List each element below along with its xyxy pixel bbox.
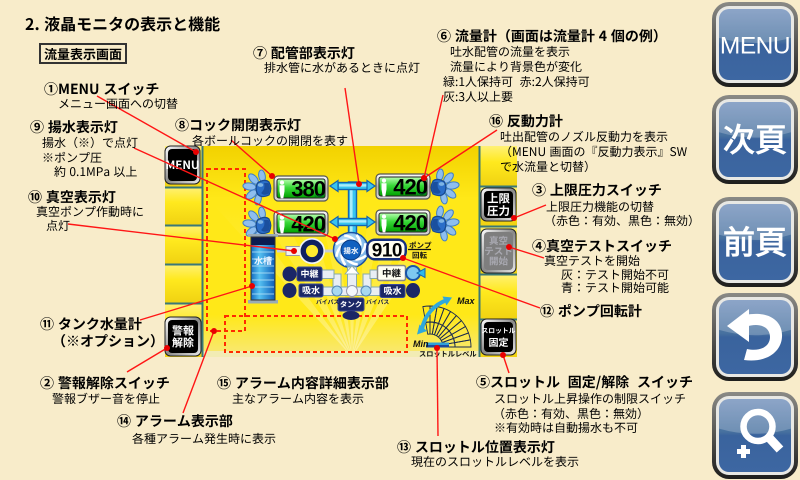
svg-text:回転: 回転 <box>412 250 427 261</box>
svg-text:吸水: 吸水 <box>302 284 320 297</box>
svg-text:次頁: 次頁 <box>723 115 787 161</box>
svg-text:中継: 中継 <box>382 266 402 280</box>
svg-text:前頁: 前頁 <box>723 218 787 264</box>
svg-text:固定: 固定 <box>489 334 509 349</box>
svg-text:L/min: L/min <box>417 192 426 196</box>
svg-text:水槽: 水槽 <box>254 254 272 267</box>
svg-text:MENU: MENU <box>720 33 790 60</box>
svg-text:910: 910 <box>372 241 402 262</box>
svg-text:開始: 開始 <box>489 254 509 268</box>
svg-text:吸水: 吸水 <box>383 284 401 297</box>
svg-text:L/min: L/min <box>417 228 426 232</box>
svg-text:スロットルレベル: スロットルレベル <box>419 350 477 360</box>
svg-text:バイパス: バイパス <box>316 297 339 306</box>
svg-text:Min: Min <box>413 339 429 349</box>
svg-text:L/min: L/min <box>315 194 324 198</box>
svg-text:圧力: 圧力 <box>487 203 510 219</box>
svg-text:解除: 解除 <box>172 334 194 350</box>
svg-text:中継: 中継 <box>300 267 318 280</box>
svg-text:揚水: 揚水 <box>344 246 359 257</box>
svg-text:Max: Max <box>457 296 476 306</box>
svg-text:バイパス: バイパス <box>366 297 389 306</box>
svg-text:タンク: タンク <box>340 299 363 310</box>
